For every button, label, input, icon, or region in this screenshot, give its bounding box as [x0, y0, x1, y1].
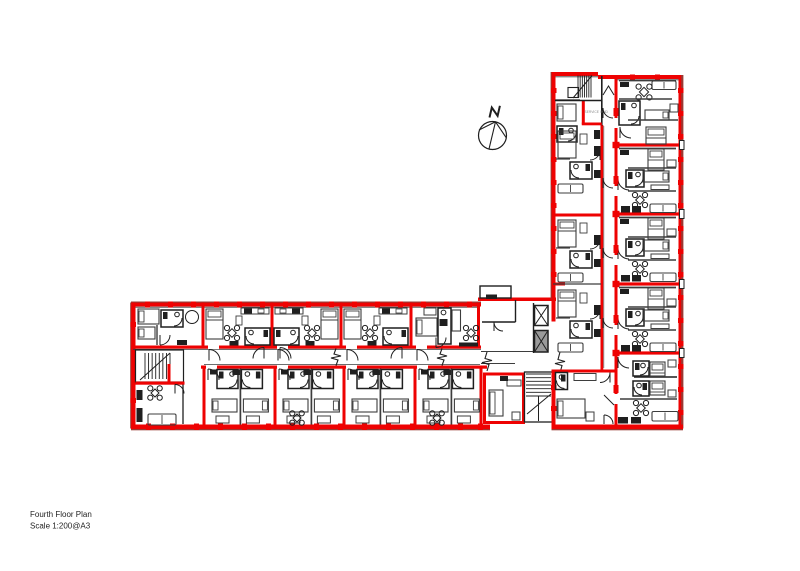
svg-text:Fourth Floor Plan: Fourth Floor Plan — [30, 510, 92, 519]
svg-text:Scale 1:200@A3: Scale 1:200@A3 — [30, 522, 91, 531]
